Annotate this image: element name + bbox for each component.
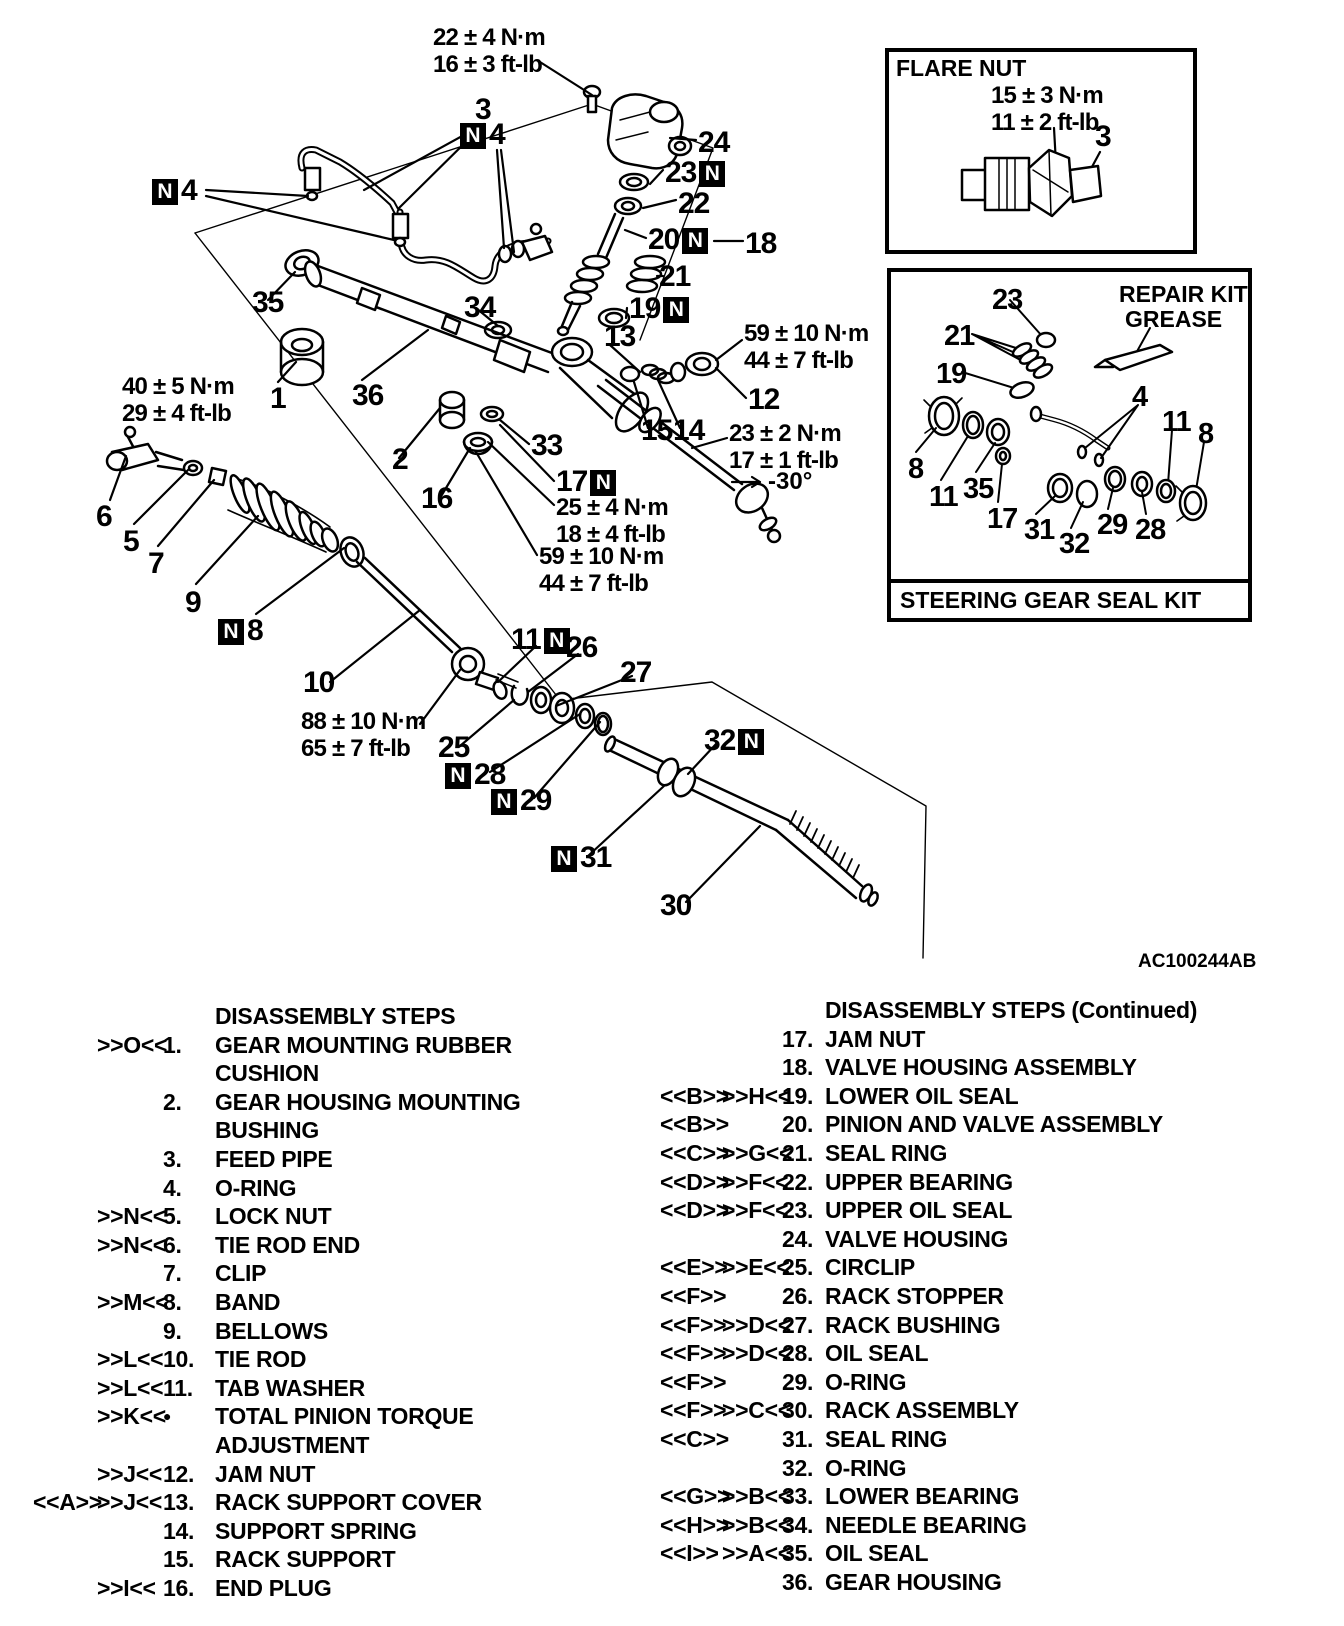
part-callout-31: N31 xyxy=(551,843,611,873)
flare-nut-box-title: FLARE NUT xyxy=(896,55,1026,82)
part-callout-21: 21 xyxy=(659,262,690,292)
step-row: <<D>>>>F<<23.UPPER OIL SEAL xyxy=(660,1196,1320,1225)
part-callout-33: 33 xyxy=(531,431,562,461)
figure-code: AC100244AB xyxy=(1138,951,1256,973)
part-callout-1: 1 xyxy=(270,384,286,414)
step-row: 18.VALVE HOUSING ASSEMBLY xyxy=(660,1053,1320,1082)
part-callout-29: N29 xyxy=(491,786,551,816)
part-callout-22: 22 xyxy=(678,189,709,219)
disassembly-steps-right: DISASSEMBLY STEPS (Continued) 17.JAM NUT… xyxy=(660,996,1320,1596)
torque-note: 25 ± 4 N·m18 ± 4 ft-lb xyxy=(556,494,668,548)
step-row: <<H>>>>B<<34.NEEDLE BEARING xyxy=(660,1511,1320,1540)
step-row: 7.CLIP xyxy=(33,1259,593,1288)
part-callout-13: 13 xyxy=(604,322,635,352)
part-callout-15: 15 xyxy=(641,416,672,446)
step-row: 14.SUPPORT SPRING xyxy=(33,1517,593,1546)
step-row: <<B>>>>H<<19.LOWER OIL SEAL xyxy=(660,1082,1320,1111)
torque-note: 40 ± 5 N·m29 ± 4 ft-lb xyxy=(122,373,234,427)
part-callout-4: N4 xyxy=(460,120,505,150)
step-row: 17.JAM NUT xyxy=(660,1025,1320,1054)
step-row: <<G>>>>B<<33.LOWER BEARING xyxy=(660,1482,1320,1511)
part-callout-6: 6 xyxy=(96,502,112,532)
step-row: <<F>>>>C<<30.RACK ASSEMBLY xyxy=(660,1396,1320,1425)
part-callout-20: 20N xyxy=(648,225,708,255)
part-callout-8: N8 xyxy=(218,616,263,646)
part-callout-9: 9 xyxy=(185,588,201,618)
part-callout-19: 19N xyxy=(629,294,689,324)
step-row: 36.GEAR HOUSING xyxy=(660,1568,1320,1597)
part-callout-24: 24 xyxy=(698,128,729,158)
part-callout-11: 11N xyxy=(511,625,570,655)
part-callout-4: N4 xyxy=(152,176,197,206)
step-row: 2.GEAR HOUSING MOUNTING BUSHING xyxy=(33,1088,593,1145)
step-row: 32.O-RING xyxy=(660,1454,1320,1483)
torque-note: 59 ± 10 N·m44 ± 7 ft-lb xyxy=(744,320,868,374)
step-row: >>K<<●TOTAL PINION TORQUE ADJUSTMENT xyxy=(33,1402,593,1459)
part-callout-36: 36 xyxy=(352,381,383,411)
step-row: >>O<<1.GEAR MOUNTING RUBBER CUSHION xyxy=(33,1031,593,1088)
step-row: 3.FEED PIPE xyxy=(33,1145,593,1174)
service-manual-page: 3N4N42423N2220N182119N133534121361514233… xyxy=(0,0,1344,1626)
step-row: <<C>>>>G<<21.SEAL RING xyxy=(660,1139,1320,1168)
part-callout-23: 23N xyxy=(665,158,725,188)
steps-right-rows: 17.JAM NUT18.VALVE HOUSING ASSEMBLY<<B>>… xyxy=(660,1025,1320,1597)
step-row: <<C>>31.SEAL RING xyxy=(660,1425,1320,1454)
part-callout-2: 2 xyxy=(392,445,408,475)
part-callout-25: 25 xyxy=(438,733,469,763)
part-callout-35: 35 xyxy=(252,288,283,318)
part-callout-18: 18 xyxy=(745,229,776,259)
step-row: >>N<<6.TIE ROD END xyxy=(33,1231,593,1260)
step-row: <<F>>>>D<<27.RACK BUSHING xyxy=(660,1311,1320,1340)
steps-left-rows: >>O<<1.GEAR MOUNTING RUBBER CUSHION2.GEA… xyxy=(33,1031,593,1603)
seal-kit-box-title: STEERING GEAR SEAL KIT xyxy=(891,579,1248,618)
part-callout-17: 17N xyxy=(556,467,616,497)
step-row: >>L<<10.TIE ROD xyxy=(33,1345,593,1374)
step-row: >>J<<12.JAM NUT xyxy=(33,1460,593,1489)
repair-kit-note-line1: REPAIR KIT xyxy=(1119,281,1248,308)
step-row: <<E>>>>E<<25.CIRCLIP xyxy=(660,1253,1320,1282)
disassembly-steps-left: DISASSEMBLY STEPS >>O<<1.GEAR MOUNTING R… xyxy=(33,1002,593,1602)
step-row: 9.BELLOWS xyxy=(33,1317,593,1346)
step-row: <<I>>>>A<<35.OIL SEAL xyxy=(660,1539,1320,1568)
flare-nut-torque-ftlb: 11 ± 2 ft-lb xyxy=(991,109,1099,137)
part-callout-5: 5 xyxy=(123,527,139,557)
step-row: <<F>>26.RACK STOPPER xyxy=(660,1282,1320,1311)
part-callout-34: 34 xyxy=(464,293,495,323)
torque-note: 59 ± 10 N·m44 ± 7 ft-lb xyxy=(539,543,663,597)
step-row: >>M<<8.BAND xyxy=(33,1288,593,1317)
torque-note: 23 ± 2 N·m17 ± 1 ft-lb xyxy=(729,420,841,474)
part-callout-16: 16 xyxy=(421,484,452,514)
part-callout-30: 30 xyxy=(660,891,691,921)
angle-note: -30° xyxy=(768,470,812,494)
step-row: <<F>>29.O-RING xyxy=(660,1368,1320,1397)
part-callout-27: 27 xyxy=(620,658,651,688)
torque-note: 88 ± 10 N·m65 ± 7 ft-lb xyxy=(301,708,425,762)
part-callout-14: 14 xyxy=(673,416,704,446)
part-callout-12: 12 xyxy=(748,385,779,415)
step-row: >>N<<5.LOCK NUT xyxy=(33,1202,593,1231)
step-row: 15.RACK SUPPORT xyxy=(33,1545,593,1574)
flare-nut-torque-nm: 15 ± 3 N·m xyxy=(991,82,1103,110)
step-row: <<A>>>>J<<13.RACK SUPPORT COVER xyxy=(33,1488,593,1517)
part-callout-7: 7 xyxy=(148,549,164,579)
step-row: <<F>>>>D<<28.OIL SEAL xyxy=(660,1339,1320,1368)
repair-kit-note-line2: GREASE xyxy=(1125,306,1222,333)
steps-left-header: DISASSEMBLY STEPS xyxy=(215,1002,593,1031)
part-callout-32: 32N xyxy=(704,726,764,756)
torque-note: 22 ± 4 N·m16 ± 3 ft-lb xyxy=(433,24,545,78)
step-row: 24.VALVE HOUSING xyxy=(660,1225,1320,1254)
step-row: <<D>>>>F<<22.UPPER BEARING xyxy=(660,1168,1320,1197)
steps-right-header: DISASSEMBLY STEPS (Continued) xyxy=(825,996,1320,1025)
flare-nut-box: FLARE NUT 15 ± 3 N·m 11 ± 2 ft-lb 3 xyxy=(885,48,1197,254)
seal-kit-box: REPAIR KIT GREASE STEERING GEAR SEAL KIT xyxy=(887,268,1252,622)
step-row: >>L<<11.TAB WASHER xyxy=(33,1374,593,1403)
part-callout-10: 10 xyxy=(303,668,334,698)
step-row: 4.O-RING xyxy=(33,1174,593,1203)
flare-nut-part-callout: 3 xyxy=(1095,122,1111,152)
part-callout-26: 26 xyxy=(566,633,597,663)
step-row: <<B>>20.PINION AND VALVE ASSEMBLY xyxy=(660,1110,1320,1139)
step-row: >>I<<16.END PLUG xyxy=(33,1574,593,1603)
